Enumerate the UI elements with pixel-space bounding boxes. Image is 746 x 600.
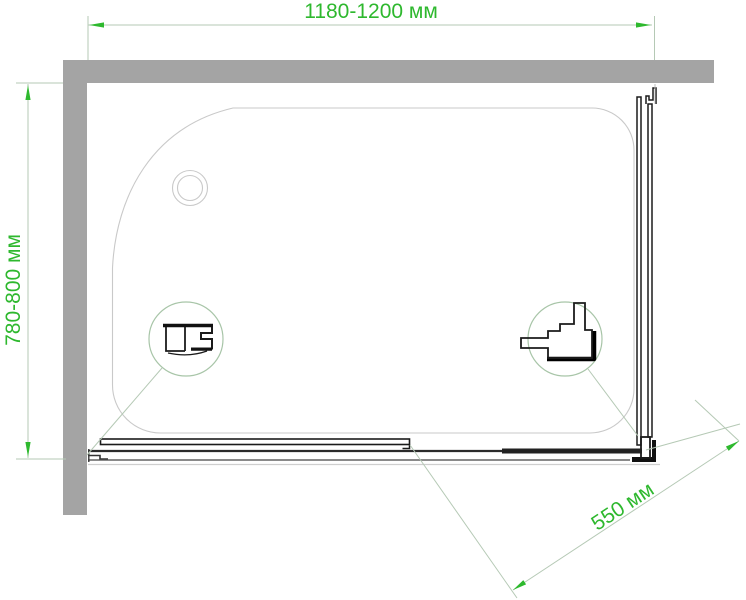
door-arrow-bottom (513, 580, 526, 590)
top-wall (63, 60, 714, 83)
walls (63, 60, 714, 515)
fixed-glass-panel (632, 84, 656, 462)
dimension-depth-label: 780-800 мм (3, 210, 25, 370)
fixed-bottom-panel (502, 449, 642, 454)
left-wall-profile (88, 456, 108, 460)
detail-circle-right (528, 302, 602, 376)
wall-profile-section-icon (163, 326, 213, 355)
shower-tray (113, 108, 635, 433)
width-arrow-left (89, 22, 104, 27)
detail-right (521, 302, 638, 436)
detail-left-leader (87, 368, 162, 455)
door-ext-left (410, 445, 517, 598)
tray-outline (113, 108, 635, 433)
left-wall (63, 60, 87, 515)
dimension-door (410, 400, 740, 598)
corner-roller-profile-icon (521, 303, 594, 359)
sliding-door-panel (101, 439, 410, 445)
detail-left (87, 302, 223, 455)
door-arrow-top (726, 441, 739, 451)
door-ext-right (646, 424, 740, 450)
sliding-door-assembly (88, 439, 660, 465)
depth-arrow-top (25, 85, 30, 100)
width-arrow-right (636, 22, 651, 27)
drain-inner-circle (178, 176, 203, 201)
depth-arrow-bottom (25, 442, 30, 457)
shower-enclosure-drawing: 1180-1200 мм 780-800 мм 550 мм (0, 0, 746, 600)
fixed-panel-glass (637, 97, 641, 445)
dimension-width-label: 1180-1200 мм (296, 1, 446, 23)
detail-right-leader (588, 369, 638, 436)
fixed-panel-profile (648, 104, 652, 437)
corner-post (641, 437, 650, 458)
